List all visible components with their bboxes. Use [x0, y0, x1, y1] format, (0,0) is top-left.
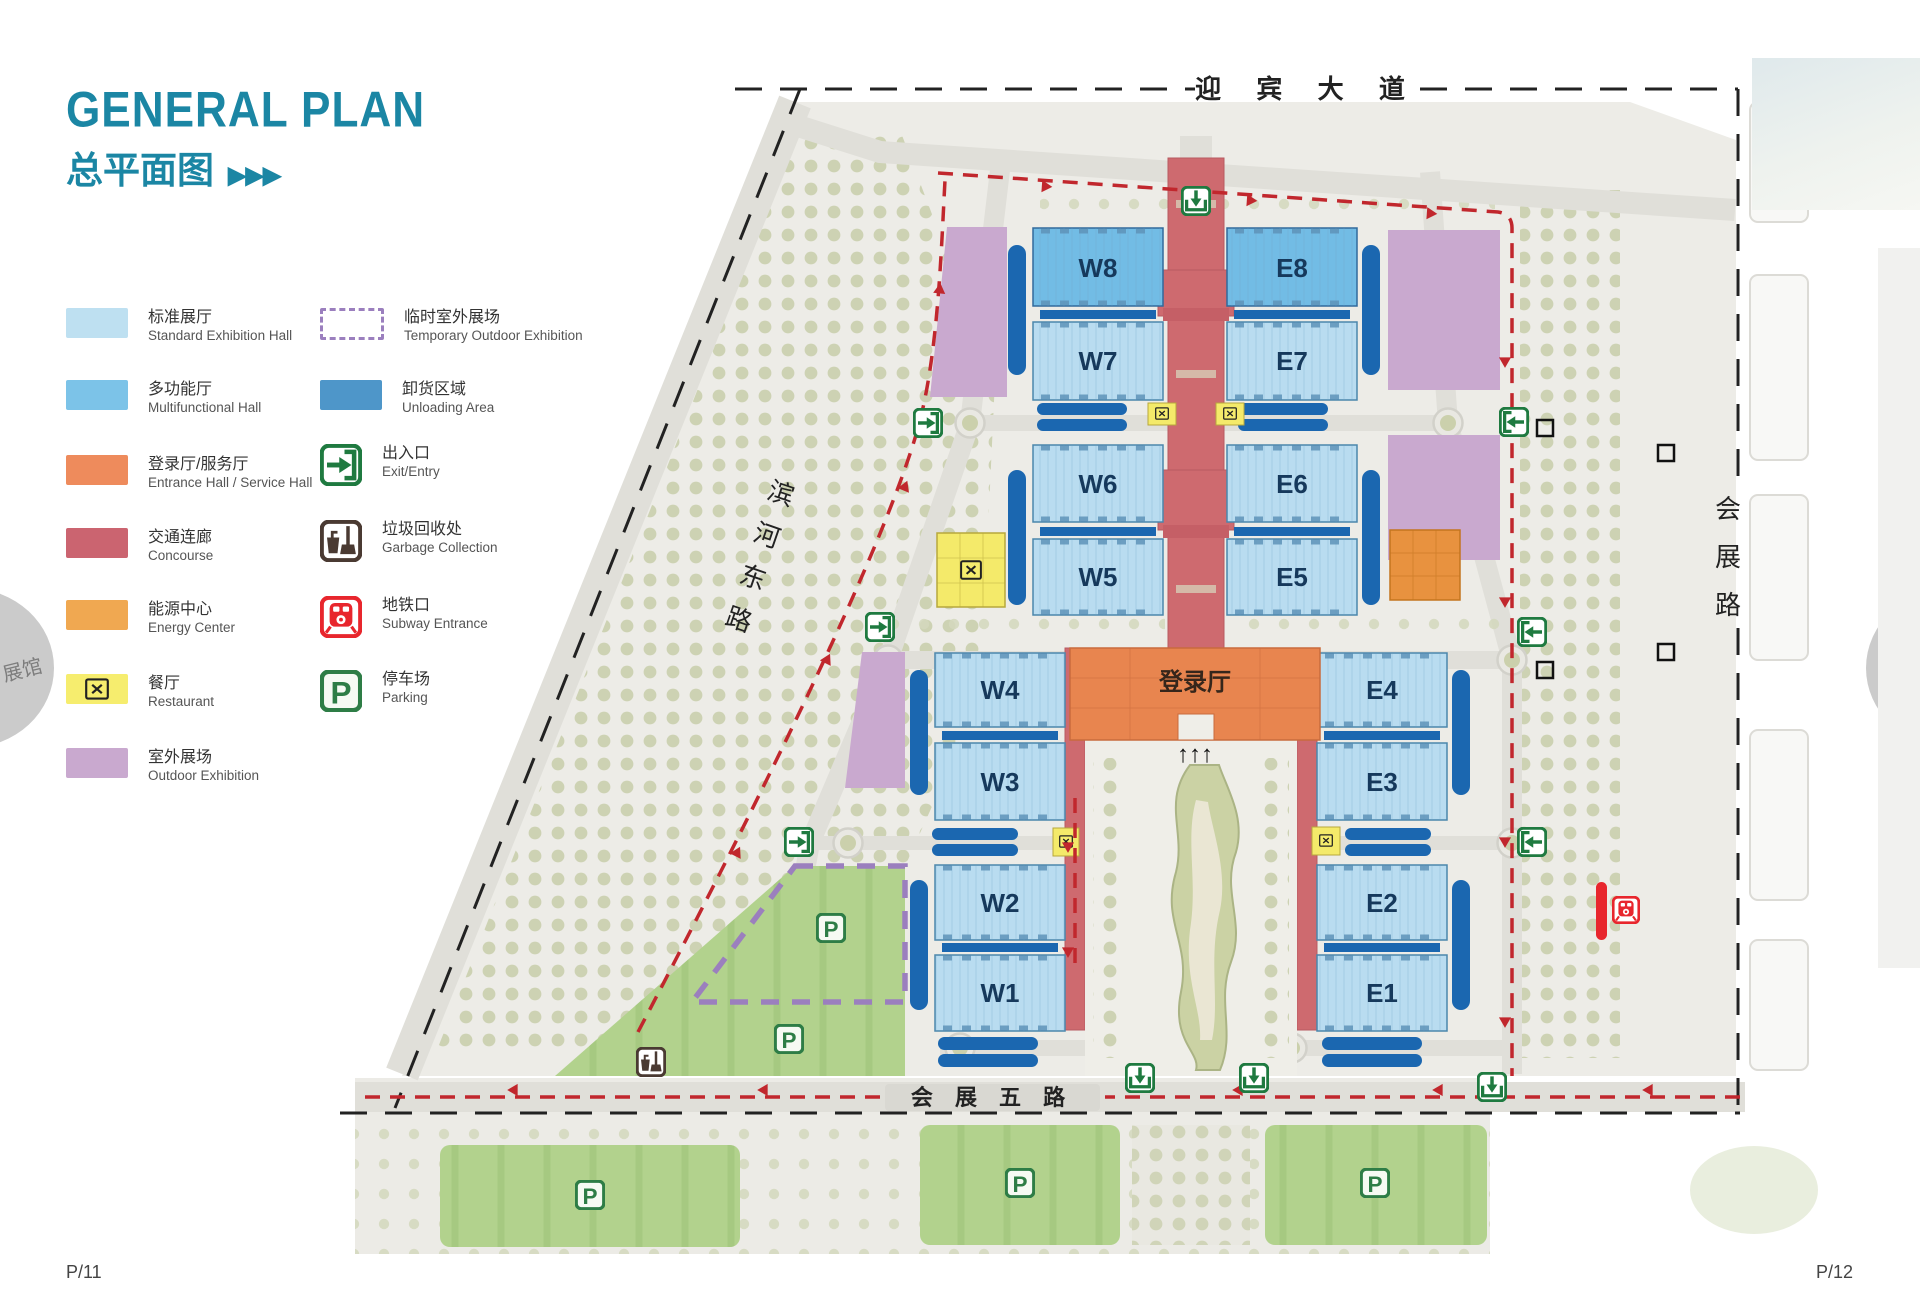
svg-text:展: 展 — [1715, 542, 1741, 572]
svg-text:E4: E4 — [1366, 675, 1398, 705]
page-subtitle: 总平面图▶▶▶ — [66, 140, 280, 194]
legend-item-restaurant: 餐厅 Restaurant — [66, 674, 214, 711]
adjacent-parcels — [1750, 102, 1808, 1070]
svg-text:E5: E5 — [1276, 562, 1308, 592]
hall-e5: E5 — [1227, 539, 1357, 615]
entrance-arrows: ↑↑↑ — [1177, 741, 1213, 768]
entry-icon — [1500, 408, 1528, 436]
entrance-hall-label: 登录厅 — [1158, 669, 1231, 696]
side-tab-left[interactable]: 展馆 — [0, 588, 54, 748]
parking-icon — [576, 1181, 604, 1209]
legend-item-outdoor-exhibition: 室外展场 Outdoor Exhibition — [66, 748, 259, 785]
restaurant-icon — [961, 561, 981, 579]
energy-center — [1390, 530, 1460, 600]
svg-text:E1: E1 — [1366, 978, 1398, 1008]
svg-text:路: 路 — [1715, 590, 1741, 620]
restaurant-swatch — [66, 674, 128, 704]
east-road-strip — [1878, 248, 1920, 968]
subway-icon — [1613, 897, 1639, 923]
entrance-hall-swatch — [66, 455, 128, 485]
hall-w8: W8 — [1033, 228, 1163, 306]
hall-w7: W7 — [1033, 322, 1163, 400]
energy-center-swatch — [66, 600, 128, 630]
axis-tree-row-west — [895, 618, 1165, 648]
entry-icon — [1518, 828, 1546, 856]
multifunctional-hall-swatch — [66, 380, 128, 410]
road-label-north: 迎 宾 大 道 — [1195, 74, 1419, 104]
svg-text:E8: E8 — [1276, 253, 1308, 283]
svg-text:会: 会 — [1715, 494, 1741, 524]
parking-icon — [775, 1025, 803, 1053]
svg-text:E3: E3 — [1366, 767, 1398, 797]
parking-icon — [817, 914, 845, 942]
hall-e6: E6 — [1227, 445, 1357, 522]
hall-w6: W6 — [1033, 445, 1163, 522]
legend-item-multifunctional-hall: 多功能厅 Multifunctional Hall — [66, 380, 261, 417]
entry-icon — [1478, 1073, 1506, 1101]
svg-text:W2: W2 — [981, 888, 1020, 918]
hall-e2: E2 — [1317, 865, 1447, 940]
page-number-right: P/12 — [1816, 1262, 1853, 1283]
concourse-swatch — [66, 528, 128, 558]
hall-w2: W2 — [935, 865, 1065, 940]
hall-e4: E4 — [1317, 653, 1447, 727]
entry-icon — [1182, 187, 1210, 215]
outdoor-exhibition-swatch — [66, 748, 128, 778]
entry-icon — [1240, 1064, 1268, 1092]
entry-icon — [866, 613, 894, 641]
hall-e1: E1 — [1317, 955, 1447, 1031]
legend-item-concourse: 交通连廊 Concourse — [66, 528, 213, 565]
hall-w4: W4 — [935, 653, 1065, 727]
axis-tree-row-east — [1230, 618, 1510, 648]
svg-text:E2: E2 — [1366, 888, 1398, 918]
svg-text:W8: W8 — [1079, 253, 1118, 283]
svg-text:E6: E6 — [1276, 469, 1308, 499]
svg-text:W5: W5 — [1079, 562, 1118, 592]
page-subtitle-text: 总平面图 — [66, 150, 214, 191]
hall-e7: E7 — [1227, 322, 1357, 400]
entry-icon — [1126, 1064, 1154, 1092]
brochure-page: P GENERAL PLAN 总平面图▶▶▶ 标准展厅 Standard Exh… — [0, 0, 1920, 1312]
entry-icon — [914, 409, 942, 437]
legend-item-standard-hall: 标准展厅 Standard Exhibition Hall — [66, 308, 292, 345]
riverside-photo — [1752, 58, 1920, 210]
legend-item-energy-center: 能源中心 Energy Center — [66, 600, 235, 637]
hall-w3: W3 — [935, 743, 1065, 820]
title-arrows-icon: ▶▶▶ — [228, 162, 280, 189]
svg-text:W4: W4 — [981, 675, 1021, 705]
svg-text:W6: W6 — [1079, 469, 1118, 499]
restaurant-icon — [85, 678, 109, 700]
entry-icon — [1518, 618, 1546, 646]
standard-hall-swatch — [66, 308, 128, 338]
page-number-left: P/11 — [66, 1262, 102, 1283]
site-plan: W8 W7 W6 W5 E8 E7 E6 E5 W4 W3 W2 W1 E4 E… — [340, 40, 1810, 1290]
svg-text:W3: W3 — [981, 767, 1020, 797]
hall-w5: W5 — [1033, 539, 1163, 615]
hall-e8: E8 — [1227, 228, 1357, 306]
road-label-south: 会 展 五 路 — [911, 1085, 1073, 1110]
green-patch — [1690, 1146, 1818, 1234]
central-garden — [1085, 740, 1297, 1076]
svg-text:W1: W1 — [981, 978, 1020, 1008]
legend-item-entrance-hall: 登录厅/服务厅 Entrance Hall / Service Hall — [66, 455, 312, 492]
subway-platform — [1596, 882, 1607, 940]
svg-text:E7: E7 — [1276, 346, 1308, 376]
garbage-icon — [637, 1048, 665, 1076]
entry-icon — [785, 828, 813, 856]
hall-w1: W1 — [935, 955, 1065, 1031]
parking-icon — [1361, 1169, 1389, 1197]
svg-text:W7: W7 — [1079, 346, 1118, 376]
hall-e3: E3 — [1317, 743, 1447, 820]
parking-icon — [1006, 1169, 1034, 1197]
